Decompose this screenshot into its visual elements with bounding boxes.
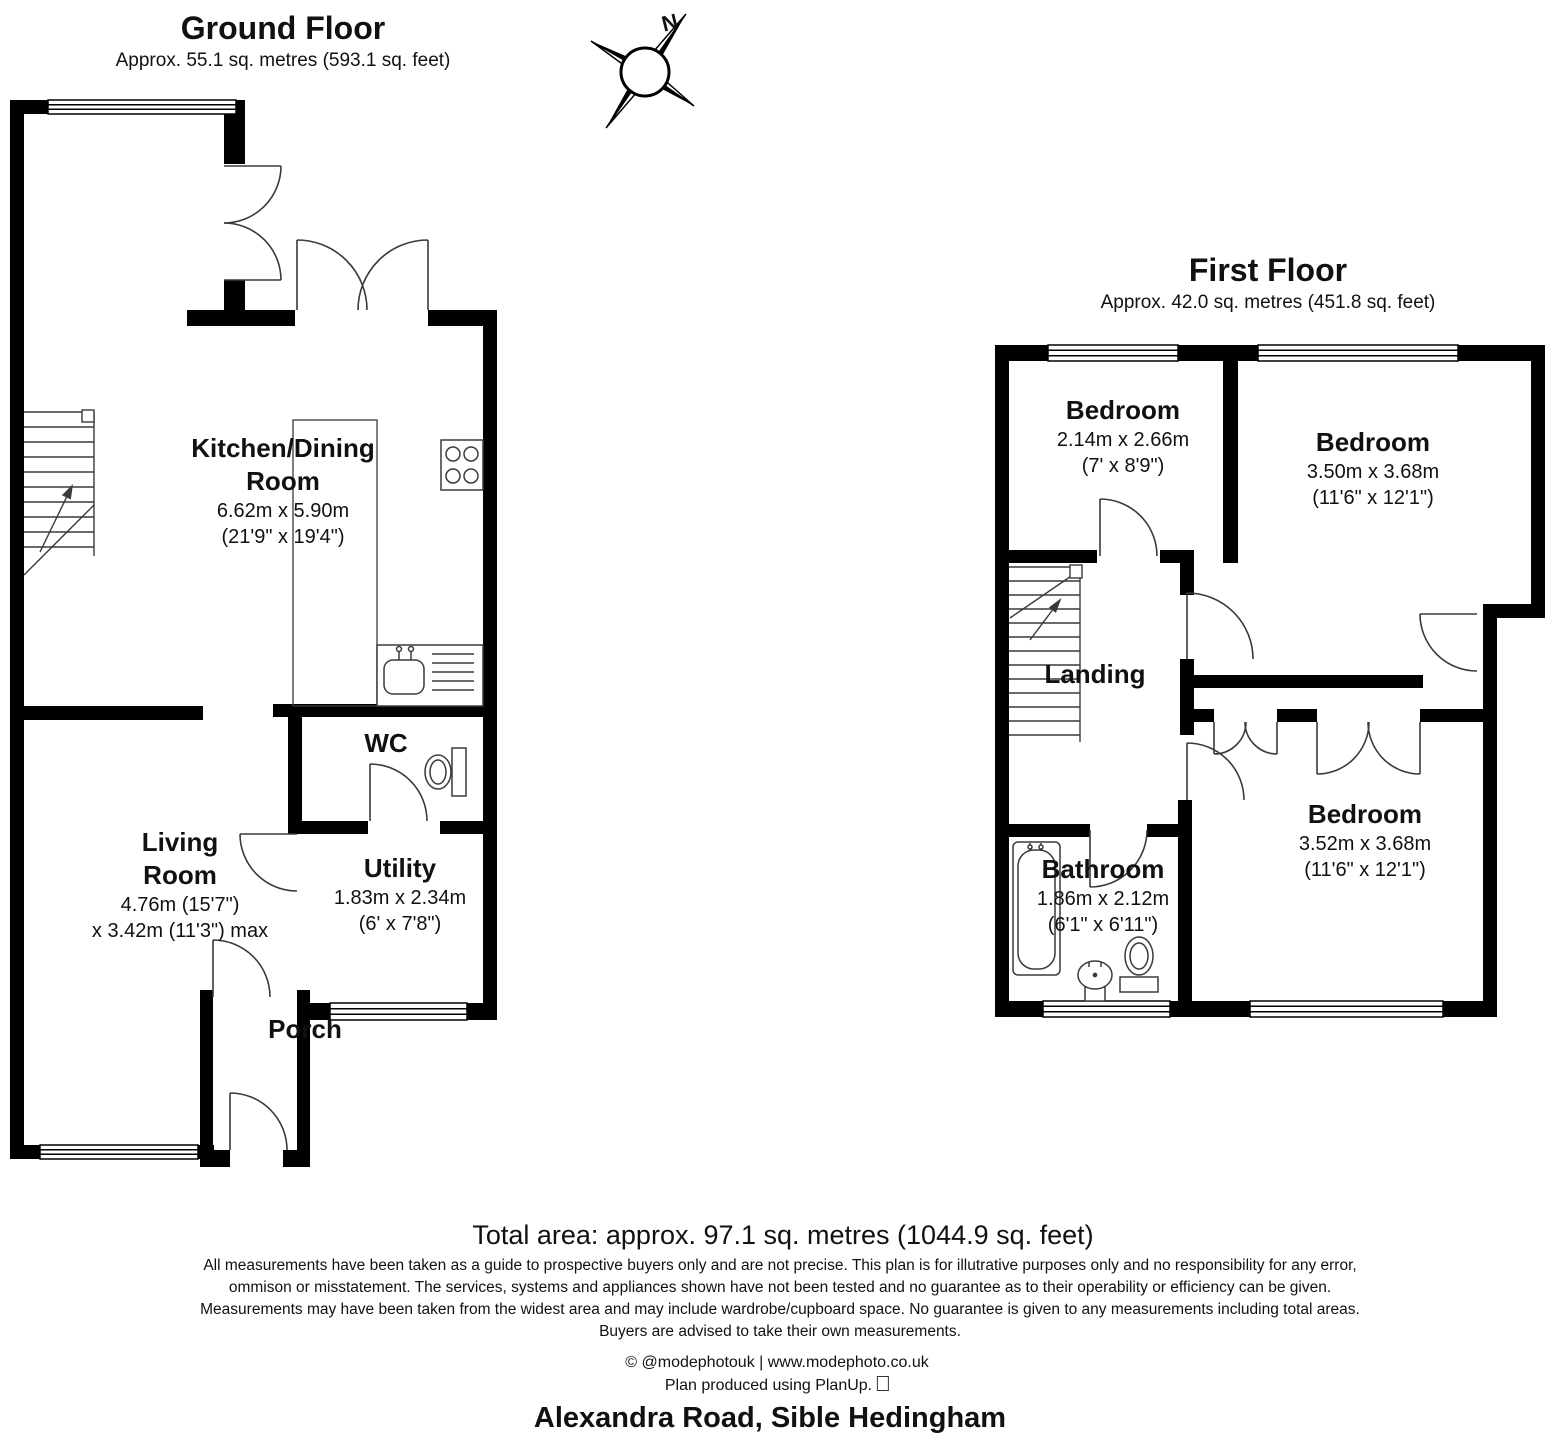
address-title: Alexandra Road, Sible Hedingham bbox=[534, 1402, 1006, 1435]
stairs-icon bbox=[24, 410, 94, 575]
room-label-wc: WC bbox=[364, 727, 407, 760]
missing-glyph-box bbox=[877, 1376, 889, 1391]
disclaimer-line-4: Buyers are advised to take their own mea… bbox=[599, 1323, 961, 1340]
disclaimer-line-1: All measurements have been taken as a gu… bbox=[203, 1257, 1356, 1274]
room-name: Bedroom bbox=[1307, 426, 1439, 459]
room-dims-imperial: (11'6" x 12'1") bbox=[1307, 485, 1439, 511]
room-dims-imperial: (21'9" x 19'4") bbox=[191, 524, 374, 550]
first-floor-title: First Floor bbox=[1101, 252, 1436, 288]
room-label-bedroom1: Bedroom 2.14m x 2.66m (7' x 8'9") bbox=[1057, 394, 1189, 479]
room-dims-imperial: x 3.42m (11'3") max bbox=[92, 918, 268, 944]
room-dims-metric: 1.86m x 2.12m bbox=[1037, 886, 1169, 912]
ground-floor-title: Ground Floor bbox=[116, 10, 451, 46]
room-label-porch: Porch bbox=[268, 1013, 342, 1046]
wc-toilet-icon bbox=[425, 748, 466, 796]
produced-text: Plan produced using PlanUp. bbox=[665, 1376, 889, 1395]
room-name: Room bbox=[92, 859, 268, 892]
total-area-text: Total area: approx. 97.1 sq. metres (104… bbox=[472, 1220, 1093, 1251]
toilet-icon bbox=[1120, 937, 1158, 992]
basin-icon bbox=[1078, 961, 1112, 1001]
room-label-landing: Landing bbox=[1044, 658, 1145, 691]
room-dims-imperial: (11'6" x 12'1") bbox=[1299, 857, 1431, 883]
floorplan-page: Ground Floor Approx. 55.1 sq. metres (59… bbox=[0, 0, 1560, 1439]
room-name: Utility bbox=[334, 852, 466, 885]
room-dims-metric: 3.52m x 3.68m bbox=[1299, 831, 1431, 857]
ground-floor-plan bbox=[10, 100, 497, 1167]
stairs-icon-first-floor bbox=[1009, 565, 1082, 742]
room-name: WC bbox=[364, 727, 407, 760]
kitchen-sink-icon bbox=[377, 645, 483, 706]
room-dims-metric: 2.14m x 2.66m bbox=[1057, 427, 1189, 453]
room-label-utility: Utility 1.83m x 2.34m (6' x 7'8") bbox=[334, 852, 466, 937]
room-label-kitchen: Kitchen/Dining Room 6.62m x 5.90m (21'9"… bbox=[191, 432, 374, 550]
room-dims-imperial: (6' x 7'8") bbox=[334, 911, 466, 937]
first-floor-subtitle: Approx. 42.0 sq. metres (451.8 sq. feet) bbox=[1101, 291, 1436, 315]
room-dims-imperial: (7' x 8'9") bbox=[1057, 453, 1189, 479]
room-name: Room bbox=[191, 465, 374, 498]
disclaimer-line-2: ommison or misstatement. The services, s… bbox=[229, 1279, 1331, 1296]
room-name: Bedroom bbox=[1057, 394, 1189, 427]
room-name: Bedroom bbox=[1299, 798, 1431, 831]
produced-label: Plan produced using PlanUp. bbox=[665, 1377, 872, 1394]
disclaimer-line-3: Measurements may have been taken from th… bbox=[200, 1301, 1360, 1318]
room-name: Living bbox=[92, 826, 268, 859]
room-dims-metric: 6.62m x 5.90m bbox=[191, 498, 374, 524]
ground-floor-windows bbox=[40, 100, 467, 1159]
room-name: Kitchen/Dining bbox=[191, 432, 374, 465]
credit-text: © @modephotouk | www.modephoto.co.uk bbox=[625, 1354, 928, 1372]
room-label-bedroom2: Bedroom 3.50m x 3.68m (11'6" x 12'1") bbox=[1307, 426, 1439, 511]
hob-icon bbox=[441, 440, 483, 490]
room-name: Porch bbox=[268, 1013, 342, 1046]
ground-floor-subtitle: Approx. 55.1 sq. metres (593.1 sq. feet) bbox=[116, 49, 451, 73]
room-label-bedroom3: Bedroom 3.52m x 3.68m (11'6" x 12'1") bbox=[1299, 798, 1431, 883]
room-dims-metric: 4.76m (15'7") bbox=[92, 892, 268, 918]
room-name: Landing bbox=[1044, 658, 1145, 691]
ground-floor-header: Ground Floor Approx. 55.1 sq. metres (59… bbox=[116, 10, 451, 73]
room-dims-imperial: (6'1" x 6'11") bbox=[1037, 912, 1169, 938]
room-dims-metric: 3.50m x 3.68m bbox=[1307, 459, 1439, 485]
room-label-bathroom: Bathroom 1.86m x 2.12m (6'1" x 6'11") bbox=[1037, 853, 1169, 938]
room-dims-metric: 1.83m x 2.34m bbox=[334, 885, 466, 911]
room-label-living: Living Room 4.76m (15'7") x 3.42m (11'3"… bbox=[92, 826, 268, 944]
disclaimer-text: All measurements have been taken as a gu… bbox=[70, 1255, 1490, 1343]
first-floor-header: First Floor Approx. 42.0 sq. metres (451… bbox=[1101, 252, 1436, 315]
room-name: Bathroom bbox=[1037, 853, 1169, 886]
